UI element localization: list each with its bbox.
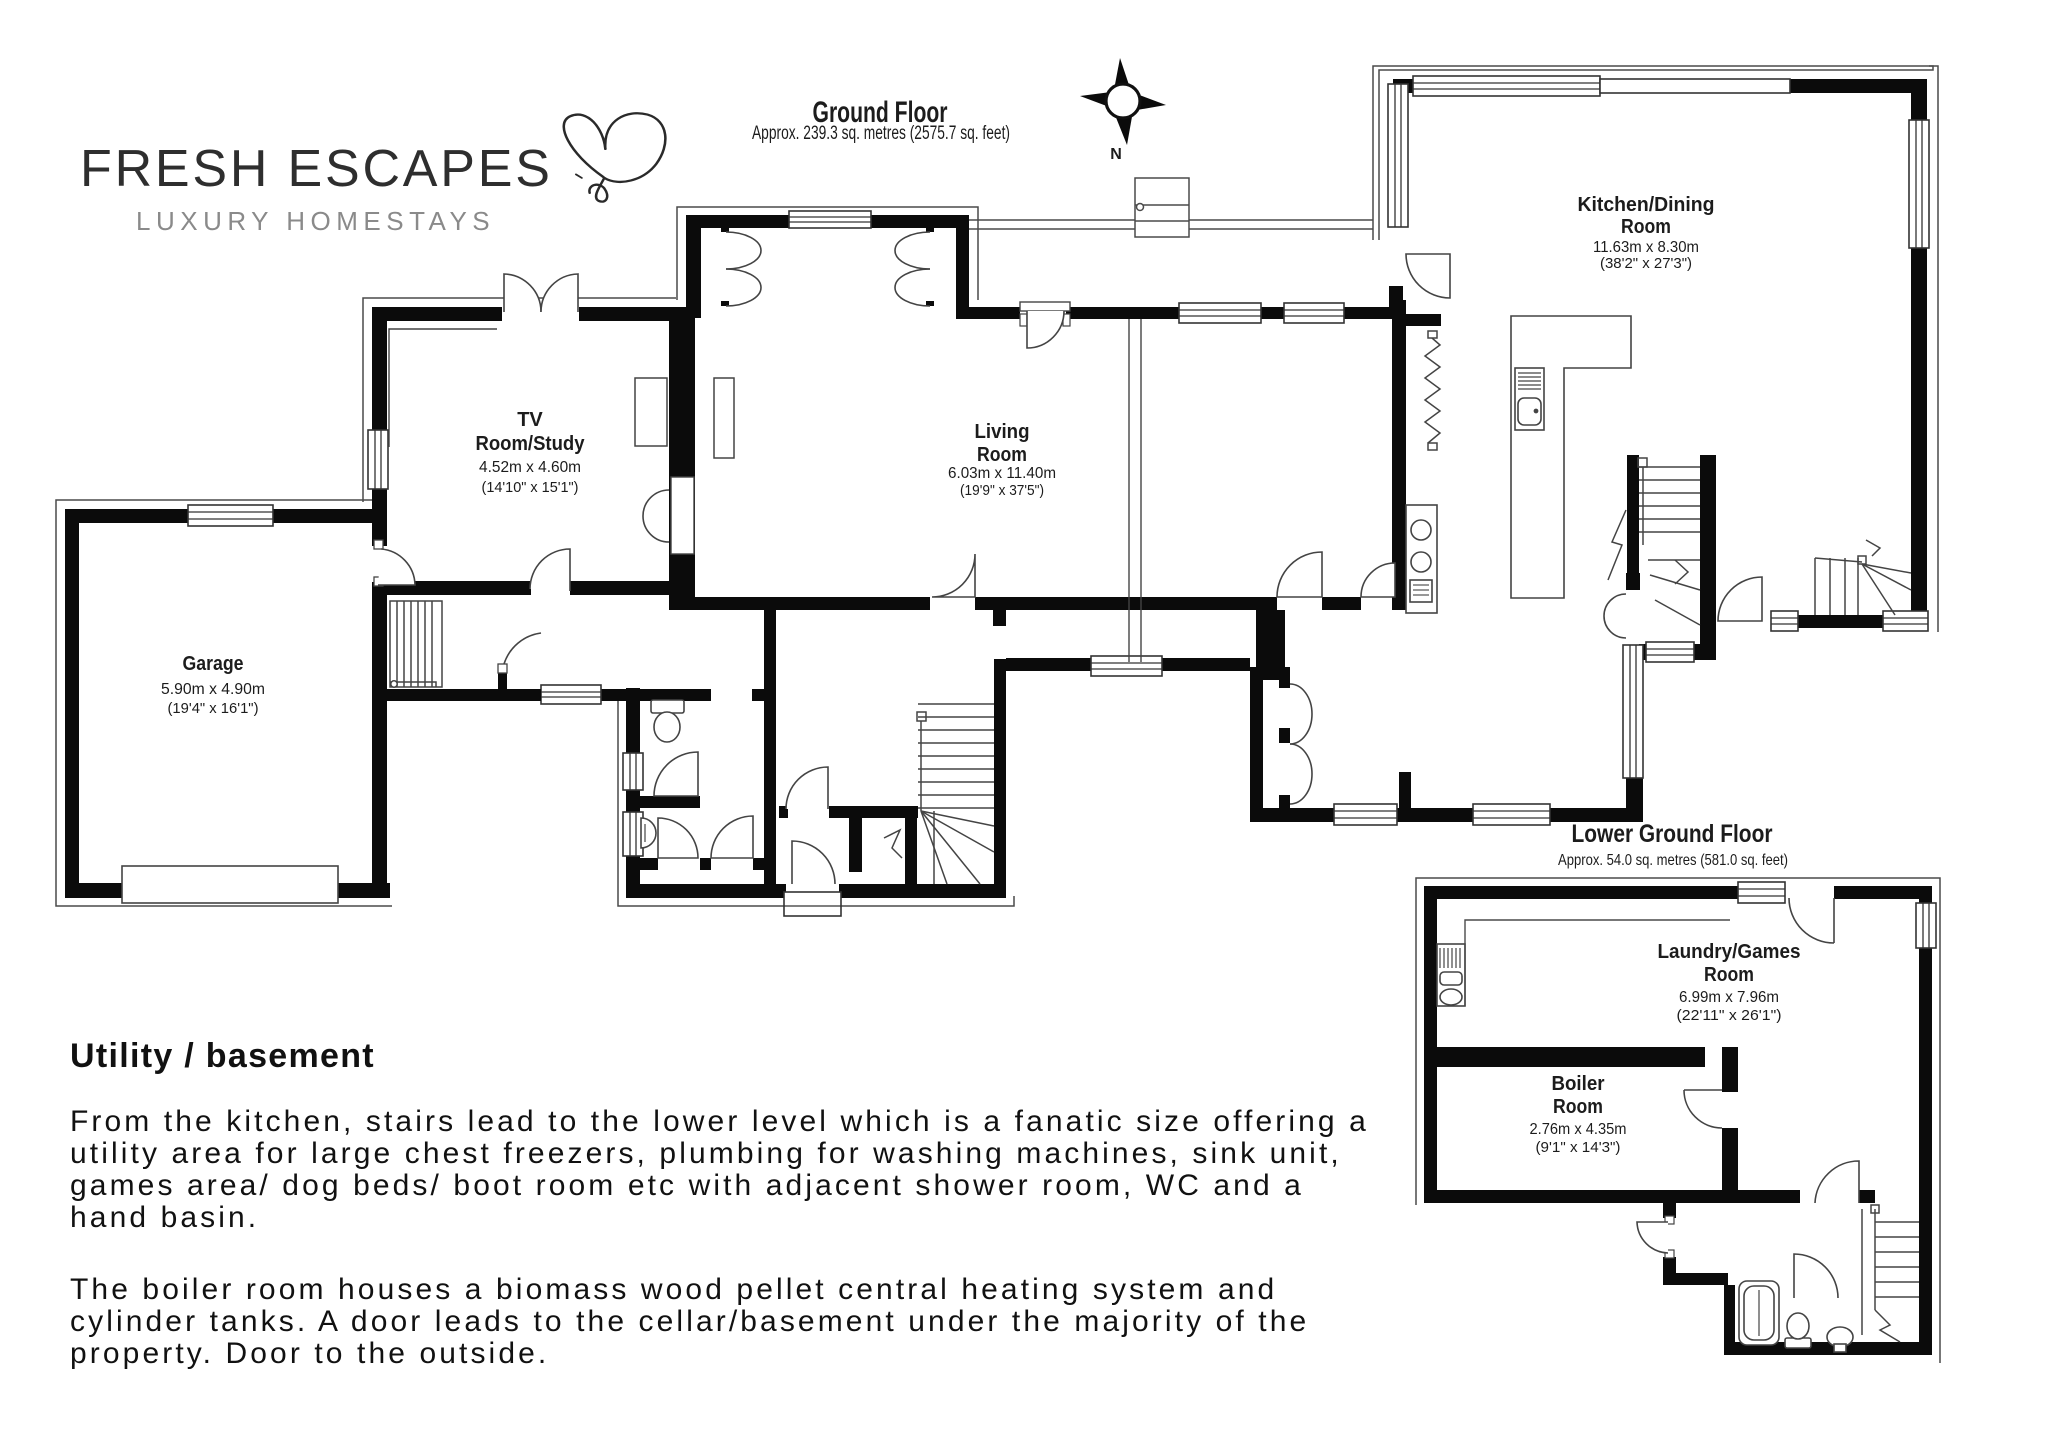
svg-text:Room: Room — [1553, 1096, 1603, 1118]
svg-text:4.52m x 4.60m: 4.52m x 4.60m — [479, 459, 581, 476]
svg-text:2.76m x 4.35m: 2.76m x 4.35m — [1530, 1121, 1627, 1138]
svg-text:(38'2" x 27'3"): (38'2" x 27'3") — [1600, 255, 1692, 272]
svg-text:6.99m x 7.96m: 6.99m x 7.96m — [1679, 989, 1779, 1006]
svg-text:Room: Room — [1704, 964, 1754, 986]
svg-text:Room: Room — [977, 444, 1027, 466]
svg-text:Garage: Garage — [183, 653, 244, 675]
svg-text:(19'9" x 37'5"): (19'9" x 37'5") — [960, 482, 1044, 499]
svg-text:Kitchen/Dining: Kitchen/Dining — [1578, 194, 1715, 216]
svg-text:Room: Room — [1621, 216, 1671, 238]
svg-text:(9'1" x 14'3"): (9'1" x 14'3") — [1536, 1139, 1621, 1156]
svg-text:Laundry/Games: Laundry/Games — [1658, 941, 1801, 963]
svg-text:Living: Living — [975, 421, 1030, 443]
svg-text:5.90m x 4.90m: 5.90m x 4.90m — [161, 681, 265, 698]
svg-text:11.63m x 8.30m: 11.63m x 8.30m — [1593, 239, 1699, 256]
svg-text:TV: TV — [517, 409, 543, 431]
svg-text:(22'11" x 26'1"): (22'11" x 26'1") — [1677, 1007, 1782, 1024]
svg-text:Room/Study: Room/Study — [476, 433, 586, 455]
svg-text:6.03m x 11.40m: 6.03m x 11.40m — [948, 465, 1056, 482]
svg-text:Boiler: Boiler — [1552, 1073, 1605, 1095]
svg-text:Approx. 239.3 sq. metres (2575: Approx. 239.3 sq. metres (2575.7 sq. fee… — [752, 123, 1010, 144]
svg-text:(19'4" x 16'1"): (19'4" x 16'1") — [168, 700, 259, 717]
svg-text:N: N — [1110, 146, 1122, 163]
svg-text:Lower Ground Floor: Lower Ground Floor — [1572, 820, 1773, 848]
svg-text:Approx. 54.0 sq. metres (581.0: Approx. 54.0 sq. metres (581.0 sq. feet) — [1558, 852, 1788, 869]
svg-text:(14'10" x 15'1"): (14'10" x 15'1") — [482, 479, 579, 496]
